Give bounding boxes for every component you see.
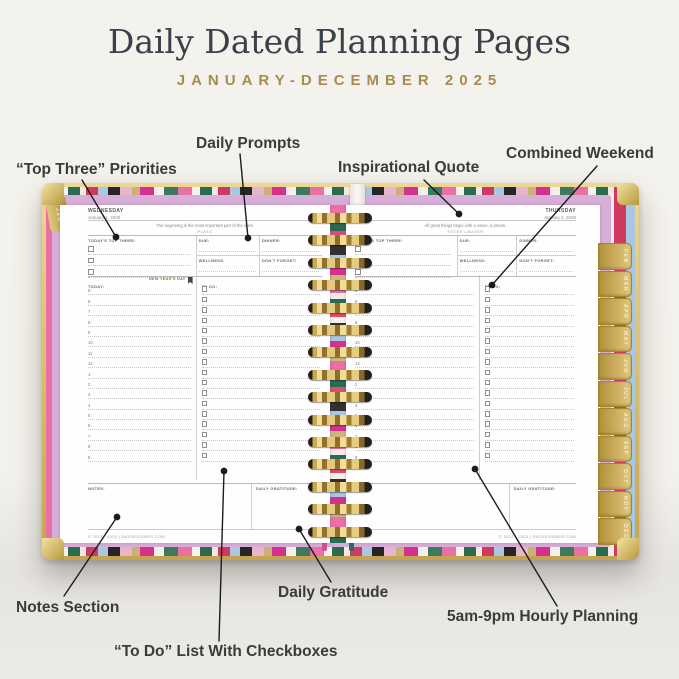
todo-row [485,399,574,409]
page-subtitle: JANUARY-DECEMBER 2025 [0,72,679,89]
callout-label-notes-section: Notes Section [16,599,119,617]
todo-row [202,368,320,378]
todo-checkbox [202,411,208,417]
callout-label-inspirational-quote: Inspirational Quote [338,159,479,177]
hour-row: 8 [88,441,191,451]
main-planning-grid: TODAY: NEW YEAR'S DAY 567891011121234567… [88,275,322,480]
hour-row: 4 [88,399,191,409]
gold-corner-bottom-right [617,538,639,560]
month-tab-oct: OCT [598,463,632,490]
hour-row: 8 [88,316,191,326]
hour-row: 7 [355,430,474,440]
hour-row: 11 [88,347,191,357]
hour-row: 10 [355,337,474,347]
todo-row [485,441,574,451]
top-three-label: TODAY'S TOP THREE: [88,236,196,243]
hour-label: 3 [88,392,90,397]
todo-row [202,295,320,305]
checkbox [88,258,94,264]
quote-text: The beginning is the most important part… [88,223,322,228]
month-tab-label: SEP [622,441,628,456]
wellness-label: WELLNESS: [196,256,259,263]
notes-section: NOTES: [355,484,510,529]
bottom-section: NOTES: DAILY GRATITUDE: [355,483,576,530]
hour-row: 6 [355,295,474,305]
spiral-coil [308,325,372,335]
todo-row [202,399,320,409]
todo-row [202,358,320,368]
month-tab-label: MAY [622,331,628,346]
month-tab-label: DEC [622,524,628,539]
todo-checkbox [485,442,491,448]
gratitude-section: DAILY GRATITUDE: [510,484,576,529]
top-three-row [88,243,190,255]
month-tab-label: OCT [622,469,628,484]
hour-row: 1 [88,368,191,378]
hour-label: 7 [88,434,90,439]
holiday-text: NEW YEAR'S DAY [149,277,186,281]
gold-corner-top-right [617,183,639,205]
todo-rows [485,285,576,462]
spiral-coil [308,213,372,223]
due-label: DUE: [457,236,517,243]
todo-row [202,389,320,399]
hour-label: 10 [355,340,360,345]
hour-row: 2 [88,379,191,389]
todo-checkbox [485,432,491,438]
todo-row [485,347,574,357]
dont-forget-cell: DON'T FORGET: [516,255,576,275]
todo-checkbox [202,432,208,438]
hour-row: 5 [355,410,474,420]
inspirational-quote-block: The beginning is the most important part… [88,223,322,234]
gold-corner-bottom-left [42,538,64,560]
spiral-coil [308,504,372,514]
hour-label: 10 [88,340,93,345]
dinner-cell: DINNER: [516,236,576,255]
main-planning-grid: TODAY: 56789101112123456789 TO DO: [355,275,576,480]
todo-checkbox [202,401,208,407]
month-tab-nov: NOV [598,491,632,518]
hour-row: 10 [88,337,191,347]
hour-label: 9 [88,330,90,335]
spiral-coil [308,437,372,447]
todo-row [202,285,320,295]
wellness-cell: WELLNESS: [196,255,259,275]
todo-row [202,441,320,451]
wellness-cell: WELLNESS: [457,255,517,275]
month-tab-feb: FEB [598,243,632,270]
hour-row: 5 [88,285,191,295]
top-section-grid: TODAY'S TOP THREE: DUE: WELLNESS: DINNER… [88,235,322,277]
hour-row: 7 [88,430,191,440]
todo-checkbox [485,453,491,459]
callout-label-daily-prompts: Daily Prompts [196,135,300,153]
todo-row [485,295,574,305]
dont-forget-label: DON'T FORGET: [516,256,576,263]
todo-checkbox [485,380,491,386]
month-tab-may: MAY [598,326,632,353]
spiral-coil [308,459,372,469]
spiral-coil [308,258,372,268]
hour-row: 9 [355,327,474,337]
hour-row: 12 [88,358,191,368]
todo-row [485,379,574,389]
month-tab-label: MAR [622,276,628,292]
spiral-coil [308,235,372,245]
todo-checkbox [202,370,208,376]
todo-checkbox [485,349,491,355]
prompts-column-1: DUE: WELLNESS: [457,236,518,276]
month-tab-jul: JUL [598,381,632,408]
month-tab-jun: JUN [598,353,632,380]
month-tab-label: FEB [622,249,628,264]
hour-label: 12 [88,361,93,366]
top-section-grid: TODAY'S TOP THREE: DUE: WELLNESS: DINNER… [355,235,576,277]
quote-author: PLATO [88,230,322,234]
todo-row [485,306,574,316]
top-three-row [355,243,451,255]
hour-label: 4 [88,403,90,408]
todo-column: TO DO: [479,275,576,480]
planner-page-right: THURSDAY January 2, 2025 All great thing… [346,205,600,543]
hour-label: 2 [355,382,357,387]
top-three-section: TODAY'S TOP THREE: [88,236,197,276]
hour-label: 6 [88,423,90,428]
todo-checkbox [202,442,208,448]
holiday-flag-icon [188,277,193,284]
checkbox [355,269,361,275]
prompts-column-2: DINNER: DON'T FORGET: [516,236,576,276]
hour-row: 6 [355,420,474,430]
month-tab-mar: MAR [598,271,632,298]
callout-label-hourly-planning: 5am-9pm Hourly Planning [447,608,638,626]
month-tab-label: JUL [622,387,628,401]
prompts-column-1: DUE: WELLNESS: [196,236,260,276]
todo-row [485,389,574,399]
todo-row [202,430,320,440]
todo-header: TO DO: [485,275,576,285]
checkbox [88,246,94,252]
spiral-coil [308,415,372,425]
planner-page-left: WEDNESDAY January 1, 2025 The beginning … [60,205,330,543]
todo-rows [202,285,322,462]
todo-checkbox [485,328,491,334]
todo-row [202,410,320,420]
todo-checkbox [202,359,208,365]
todo-row [202,306,320,316]
todo-checkbox [202,349,208,355]
spiral-coil [308,280,372,290]
hour-label: 5 [88,413,90,418]
planner-book: JAN WEDNESDAY January 1, 2025 The beginn… [42,183,639,560]
todo-checkbox [202,421,208,427]
month-tab-label: AUG [622,413,628,429]
hour-row: 9 [355,451,474,461]
page-date-header: THURSDAY January 2, 2025 [355,208,576,220]
todo-column: TO DO: [196,275,322,480]
todo-row [485,430,574,440]
hour-label: 5 [88,288,90,293]
hour-row: 2 [355,379,474,389]
hour-row: 3 [355,389,474,399]
todo-checkbox [485,411,491,417]
todo-checkbox [202,286,208,292]
hour-row: 3 [88,389,191,399]
todo-row [485,420,574,430]
hour-label: 12 [355,361,360,366]
todo-header: TO DO: [202,275,322,285]
month-tab-sep: SEP [598,436,632,463]
weekday-label: WEDNESDAY [88,208,322,214]
hour-row: 1 [355,368,474,378]
todo-row [485,410,574,420]
todo-checkbox [202,307,208,313]
holiday-label: NEW YEAR'S DAY [149,277,193,284]
todo-row [485,337,574,347]
hour-row: 9 [88,327,191,337]
hourly-schedule-column: TODAY: 56789101112123456789 [355,275,480,480]
today-header: TODAY: [355,275,479,285]
spiral-coil [308,370,372,380]
weekday-label: THURSDAY [355,208,576,214]
hour-label: 11 [88,351,92,356]
checkbox [88,269,94,275]
hour-row: 11 [355,347,474,357]
spiral-coil [308,392,372,402]
callout-label-todo-list: “To Do” List With Checkboxes [114,643,337,661]
hour-row: 9 [88,451,191,461]
hour-row: 12 [355,358,474,368]
hour-row: 5 [355,285,474,295]
todo-row [485,368,574,378]
hour-row: 7 [88,306,191,316]
page-date-header: WEDNESDAY January 1, 2025 [88,208,322,220]
todo-checkbox [485,286,491,292]
todo-checkbox [202,297,208,303]
notes-section: NOTES: [88,484,252,529]
hour-row: 6 [88,295,191,305]
hour-label: 2 [88,382,90,387]
todo-row [202,337,320,347]
todo-checkbox [485,401,491,407]
todo-row [202,379,320,389]
spiral-coil [308,482,372,492]
hour-row: 4 [355,399,474,409]
todo-row [202,451,320,461]
quote-author: ESTEE LAUDER [355,230,576,234]
checkbox [355,246,361,252]
todo-checkbox [485,318,491,324]
hour-row: 5 [88,410,191,420]
month-tab-label: JUN [622,359,628,374]
hour-row: 8 [355,441,474,451]
notes-label: NOTES: [355,484,509,491]
bottom-section: NOTES: DAILY GRATITUDE: [88,483,322,530]
spiral-coil [308,347,372,357]
header-divider [88,220,322,221]
spiral-coil [308,303,372,313]
todo-checkbox [202,318,208,324]
gold-corner-top-left [42,183,64,205]
todo-checkbox [202,390,208,396]
hourly-schedule-column: TODAY: NEW YEAR'S DAY 567891011121234567… [88,275,197,480]
month-tab-apr: APR [598,298,632,325]
todo-row [202,347,320,357]
callout-label-top-three: “Top Three” Priorities [16,161,177,179]
product-feature-image: Daily Dated Planning Pages JANUARY-DECEM… [0,0,679,679]
hour-row: 7 [355,306,474,316]
today-header: TODAY: NEW YEAR'S DAY [88,275,196,285]
todo-checkbox [202,453,208,459]
page-footer: © 2012 - 2023 | DAYDESIGNER.COM [355,535,576,539]
todo-checkbox [485,359,491,365]
hour-rows: 56789101112123456789 [88,285,196,462]
callout-label-daily-gratitude: Daily Gratitude [278,584,388,602]
hour-rows: 56789101112123456789 [355,285,479,462]
notes-label: NOTES: [88,484,251,491]
hour-label: 1 [88,372,90,377]
month-tab-label: APR [622,304,628,319]
hour-label: 8 [88,320,90,325]
todo-checkbox [202,338,208,344]
todo-row [202,420,320,430]
todo-row [202,316,320,326]
due-label: DUE: [196,236,259,243]
page-title: Daily Dated Planning Pages [0,22,679,61]
callout-label-combined-weekend: Combined Weekend [506,145,654,163]
due-cell: DUE: [457,236,517,255]
todo-checkbox [485,390,491,396]
todo-checkbox [202,380,208,386]
todo-checkbox [485,307,491,313]
gratitude-label: DAILY GRATITUDE: [514,484,576,491]
hour-label: 6 [88,299,90,304]
todo-checkbox [485,421,491,427]
todo-row [485,358,574,368]
todo-row [485,316,574,326]
page-footer: © 2012 - 2023 | DAYDESIGNER.COM [88,535,322,539]
hour-label: 8 [355,320,357,325]
quote-text: All great things begin with a vision, a … [355,223,576,228]
todo-row [485,285,574,295]
todo-checkbox [202,328,208,334]
month-tab-aug: AUG [598,408,632,435]
todo-checkbox [485,297,491,303]
hour-row: 6 [88,420,191,430]
todo-row [485,451,574,461]
todo-row [202,327,320,337]
hour-row: 8 [355,316,474,326]
todo-checkbox [485,338,491,344]
month-tab-label: NOV [622,496,628,511]
todo-checkbox [485,370,491,376]
top-three-row [88,255,190,267]
hour-label: 7 [88,309,90,314]
due-cell: DUE: [196,236,259,255]
hour-label: 9 [88,455,90,460]
dinner-label: DINNER: [516,236,576,243]
hour-label: 4 [355,403,357,408]
todo-row [485,327,574,337]
header-divider [355,220,576,221]
wellness-label: WELLNESS: [457,256,517,263]
inspirational-quote-block: All great things begin with a vision, a … [355,223,576,234]
hour-label: 8 [88,444,90,449]
spiral-coil [308,527,372,537]
